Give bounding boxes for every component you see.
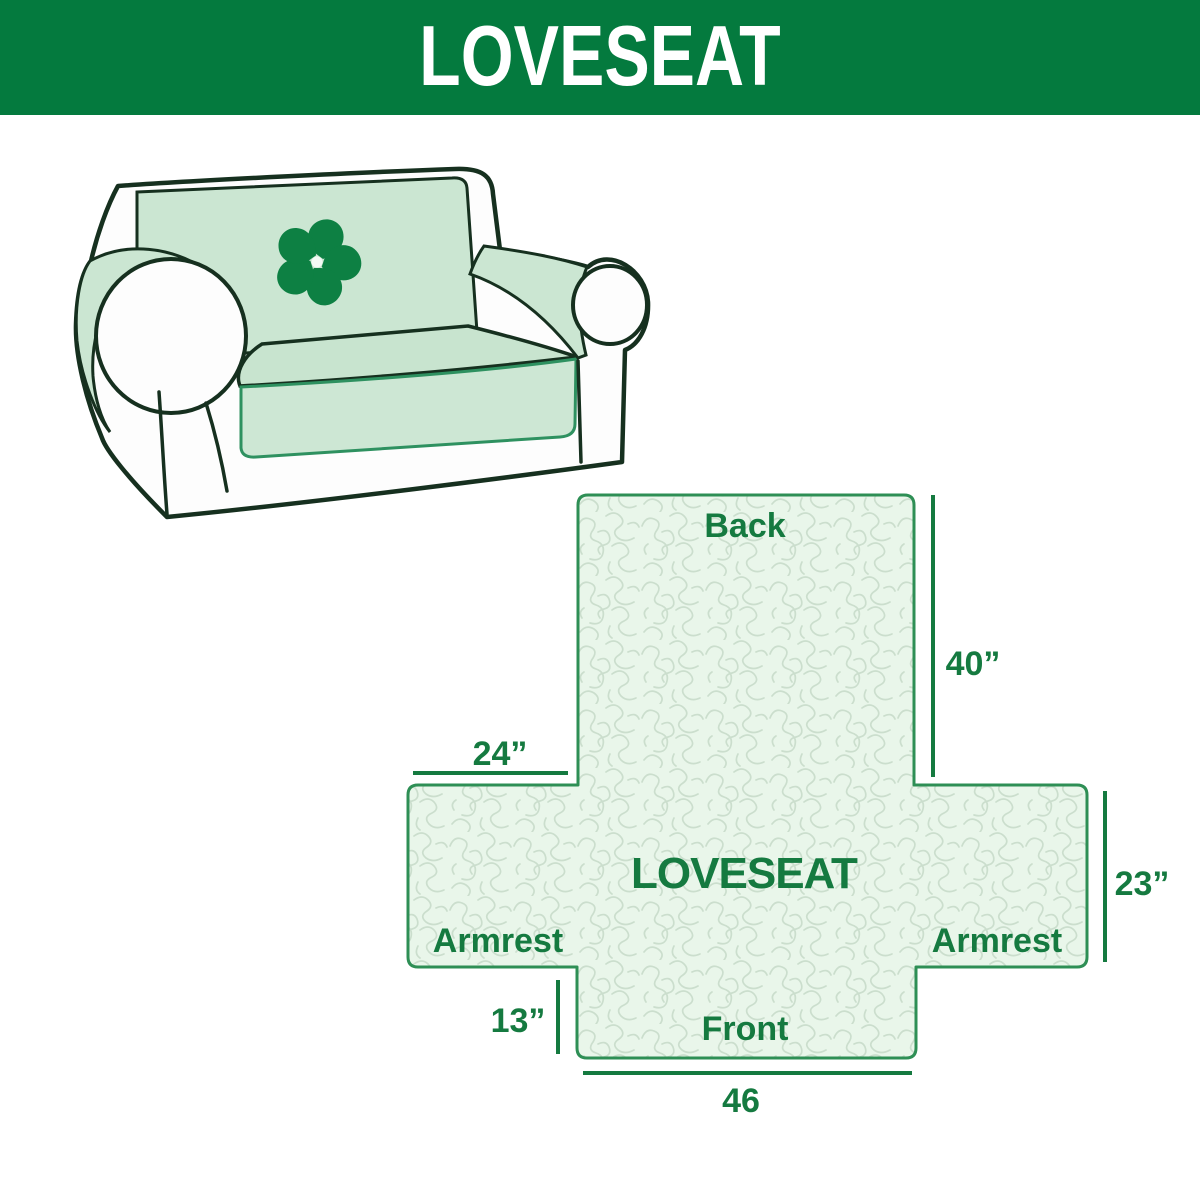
dim-front-width: 46	[722, 1084, 760, 1118]
scene-canvas	[0, 0, 1200, 1200]
center-label: LOVESEAT	[631, 852, 857, 896]
dim-front-drop: 13”	[491, 1004, 546, 1038]
front-label: Front	[702, 1012, 789, 1046]
cover-shape	[408, 495, 1087, 1058]
armrest-left-label: Armrest	[433, 924, 563, 958]
right-arm-scroll	[573, 266, 647, 344]
dim-armrest-side: 23”	[1115, 867, 1170, 901]
left-arm-scroll	[96, 259, 246, 413]
dim-armrest-top: 24”	[473, 737, 528, 771]
sofa-illustration	[76, 169, 648, 517]
cover-dimension-diagram	[408, 495, 1105, 1073]
armrest-right-label: Armrest	[932, 924, 1062, 958]
back-label: Back	[704, 509, 785, 543]
dim-back-height: 40”	[946, 647, 1001, 681]
